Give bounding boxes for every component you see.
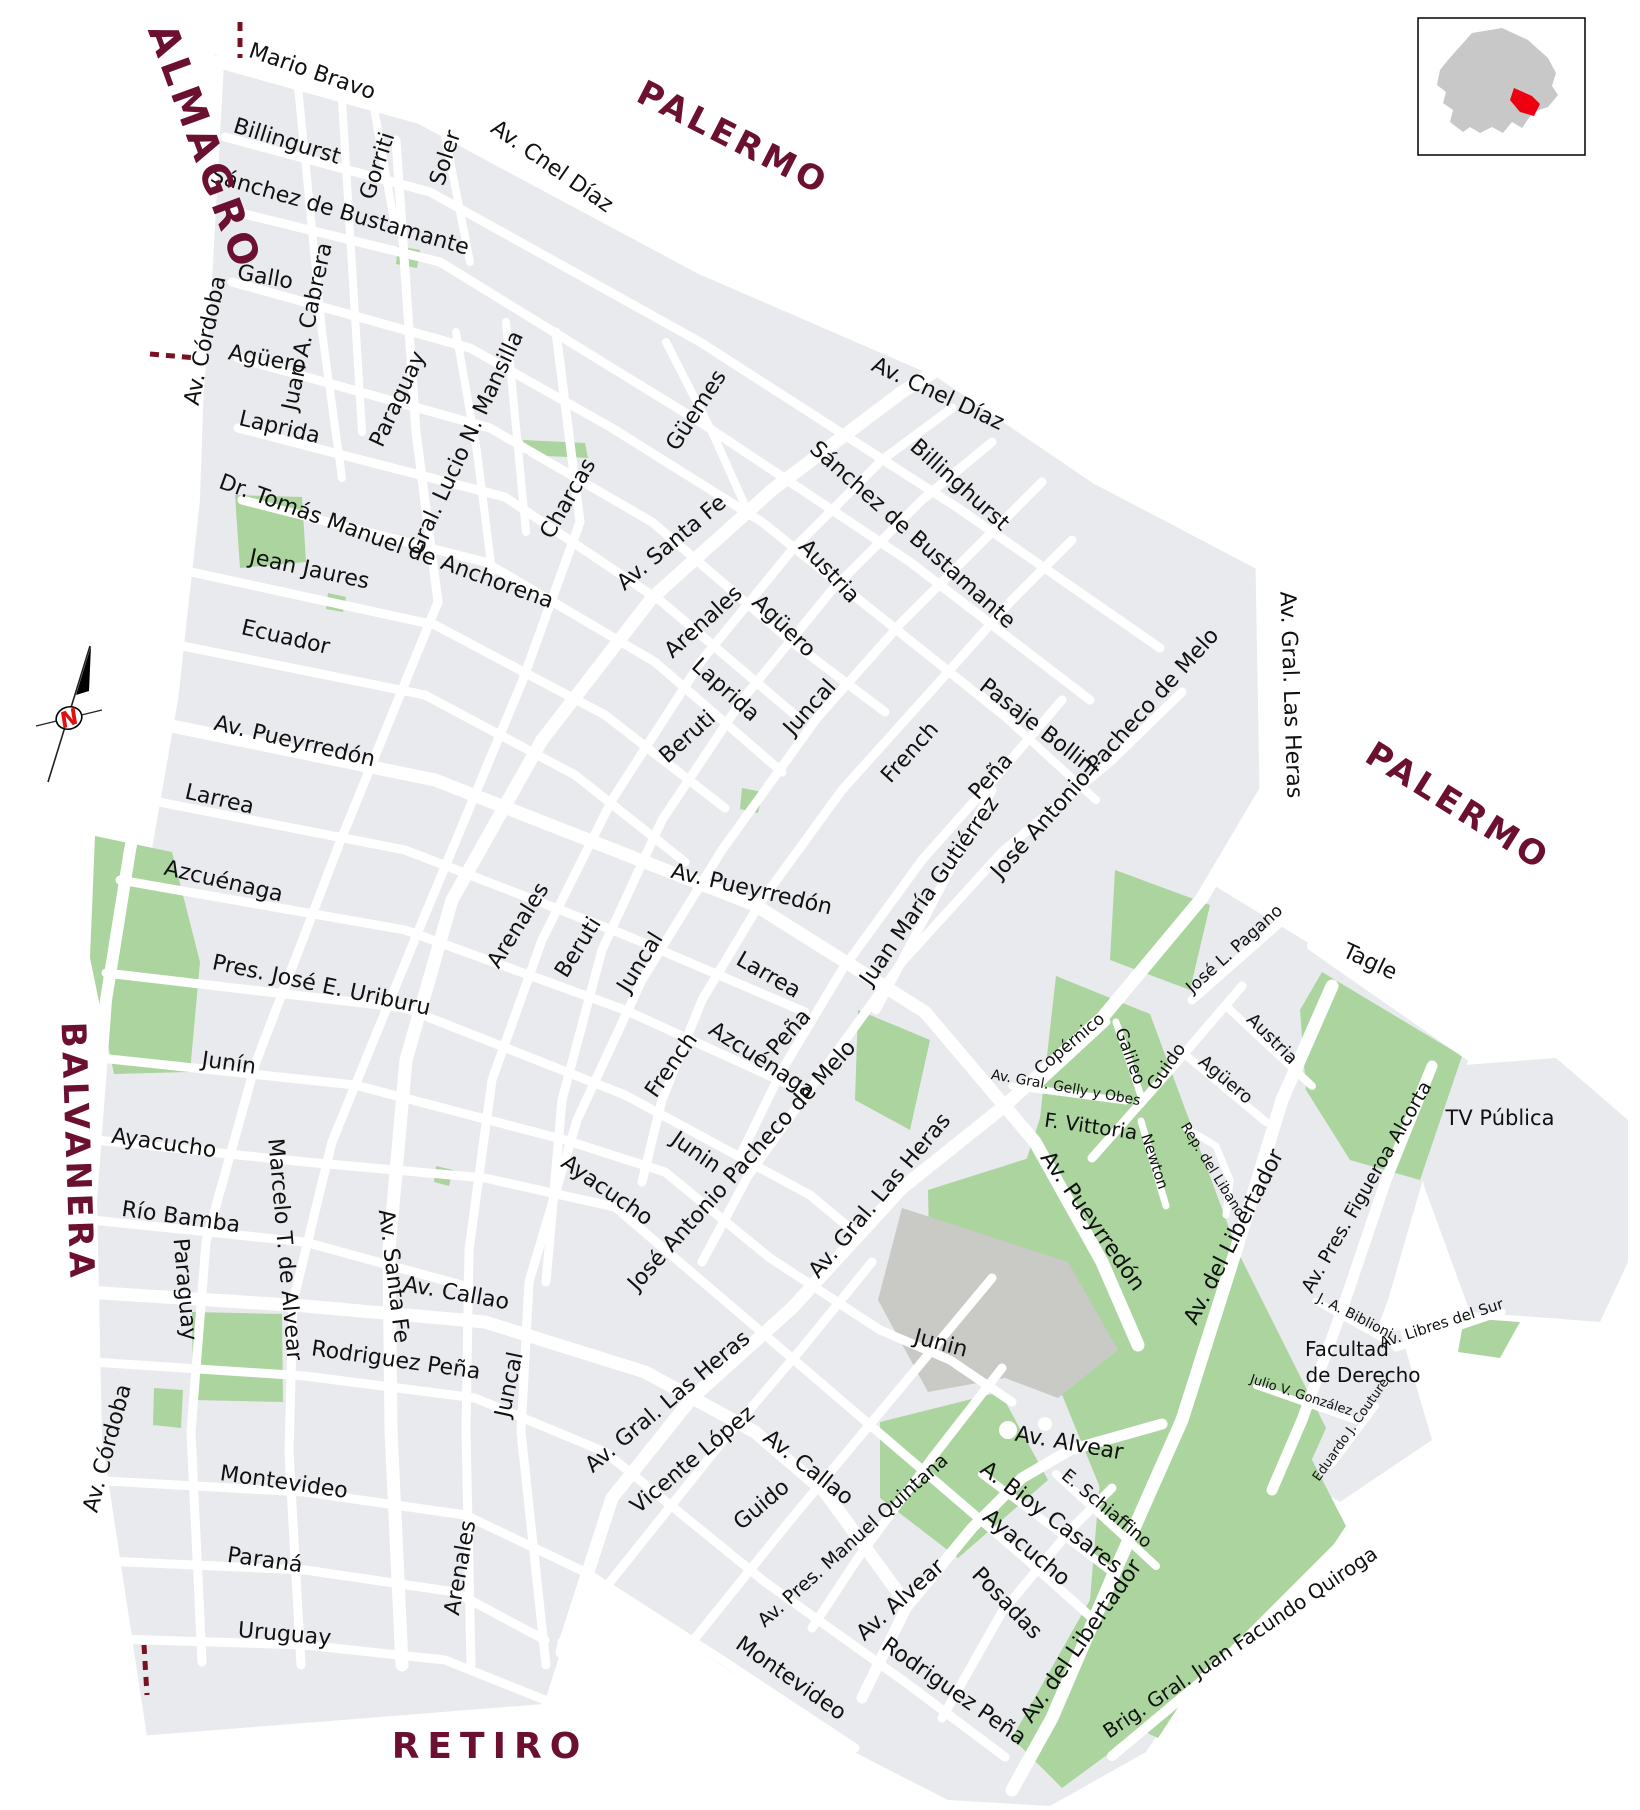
compass-arrowhead-icon: [76, 646, 91, 695]
park-area: [153, 1388, 183, 1428]
street-label: Av. Gral. Las Heras: [1274, 591, 1306, 799]
neighborhood-label: BALVANERA: [52, 1021, 101, 1282]
neighborhood-label: PALERMO: [630, 73, 835, 204]
inset-map: [1418, 18, 1585, 155]
map-canvas: Mario BravoBillingurstSánchez de Bustama…: [0, 0, 1640, 1810]
neighborhood-label: PALERMO: [1358, 734, 1557, 879]
neighborhood-label: RETIRO: [392, 1726, 589, 1767]
street-label: TV Pública: [1445, 1106, 1555, 1130]
map-viewport: Mario BravoBillingurstSánchez de Bustama…: [0, 0, 1640, 1810]
street-label: de Derecho: [1305, 1363, 1420, 1387]
park-area: [192, 1312, 283, 1402]
street-label: Facultad: [1305, 1337, 1389, 1361]
compass-rose: N: [36, 646, 102, 782]
